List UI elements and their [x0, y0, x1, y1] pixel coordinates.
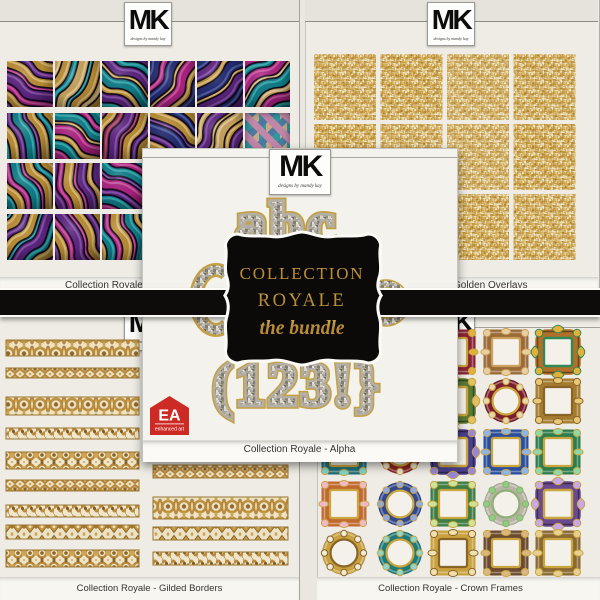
- svg-text:ROYALE: ROYALE: [258, 291, 347, 311]
- svg-text:COLLECTION: COLLECTION: [240, 264, 365, 283]
- svg-text:the bundle: the bundle: [259, 318, 344, 339]
